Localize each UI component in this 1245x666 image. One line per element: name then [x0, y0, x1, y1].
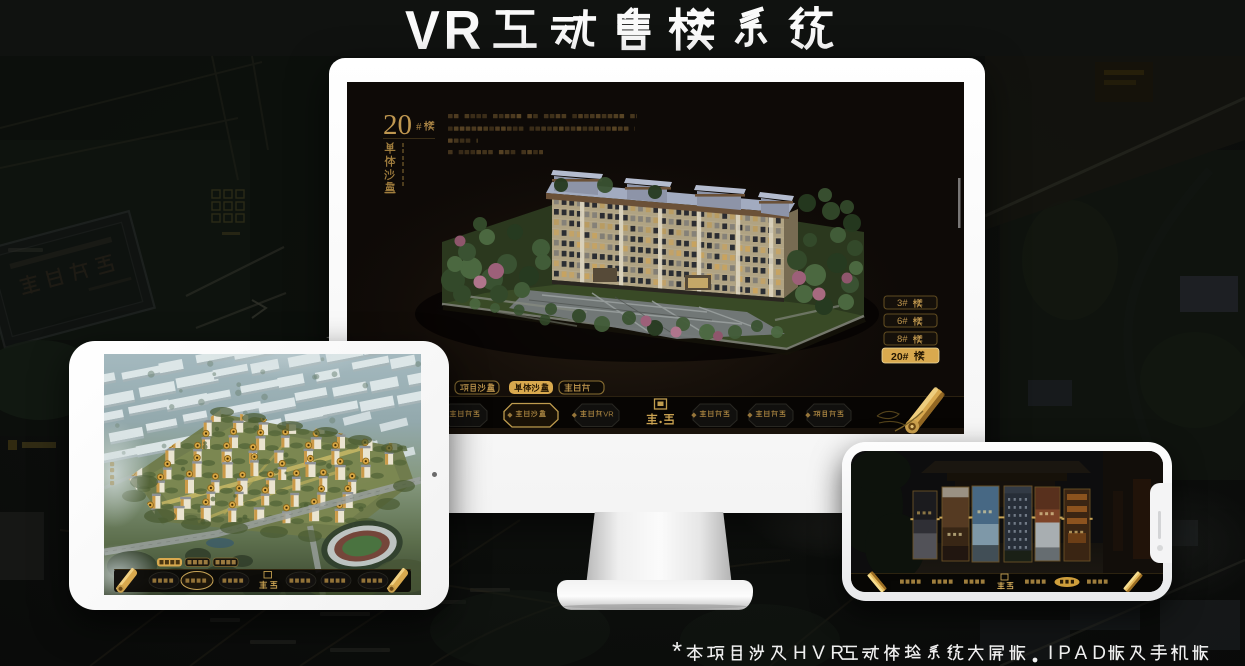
- svg-text:6#: 6#: [897, 316, 908, 327]
- svg-text:#: #: [416, 121, 422, 133]
- svg-text:8#: 8#: [897, 334, 908, 345]
- svg-text:20#: 20#: [891, 351, 909, 363]
- svg-text:VR: VR: [405, 0, 485, 61]
- svg-text:3#: 3#: [897, 298, 908, 309]
- svg-text:HVR: HVR: [793, 643, 850, 664]
- svg-text:*: *: [672, 636, 682, 666]
- svg-text:VR: VR: [603, 410, 614, 419]
- svg-text:20: 20: [383, 109, 412, 141]
- svg-text:IPAD: IPAD: [1048, 643, 1111, 664]
